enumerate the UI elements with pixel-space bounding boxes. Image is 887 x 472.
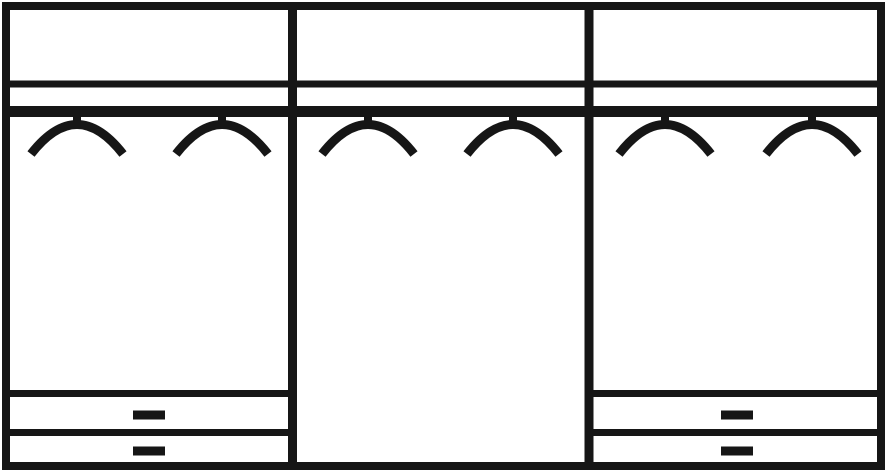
drawer-handle — [133, 447, 165, 456]
drawer-handle — [721, 447, 753, 456]
wardrobe-schematic-page — [0, 0, 887, 472]
wardrobe-diagram — [0, 0, 887, 472]
drawer-handle — [721, 411, 753, 420]
drawer-handle — [133, 411, 165, 420]
diagram-background — [0, 0, 887, 472]
